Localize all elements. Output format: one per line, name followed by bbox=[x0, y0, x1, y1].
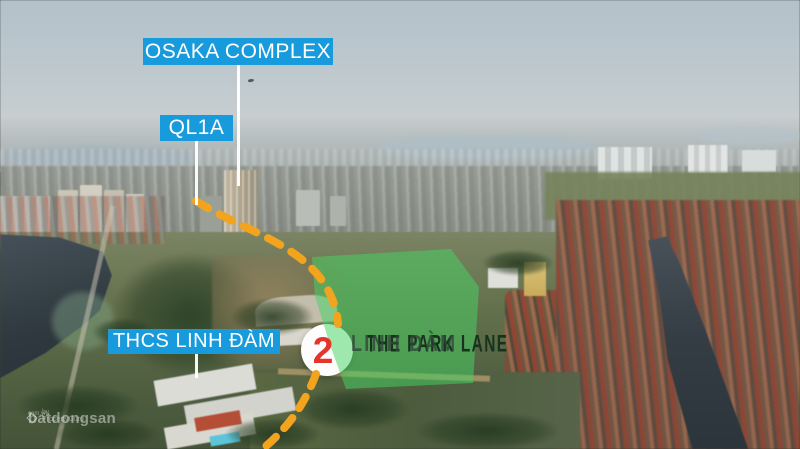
label-osaka-complex: OSAKA COMPLEX bbox=[143, 38, 333, 65]
leader-line-ql1a bbox=[195, 141, 198, 205]
watermark-byline: by PropertyGuru bbox=[42, 409, 84, 423]
label-ql1a-highway: QL1A bbox=[160, 115, 233, 141]
leader-line-osaka bbox=[237, 65, 240, 186]
marker-number: 2 bbox=[301, 326, 345, 376]
label-thcs-linh-dam-school: THCS LINH ĐÀM bbox=[108, 329, 280, 354]
route-dashed-line-lower bbox=[265, 374, 316, 447]
project-subtitle: LINH ĐÀM bbox=[351, 330, 457, 357]
map-annotation-layer bbox=[0, 0, 800, 449]
aerial-map-image: 2 THE PARK LANE LINH ĐÀM OSAKA COMPLEX Q… bbox=[0, 0, 800, 449]
leader-line-thcs bbox=[195, 354, 198, 378]
